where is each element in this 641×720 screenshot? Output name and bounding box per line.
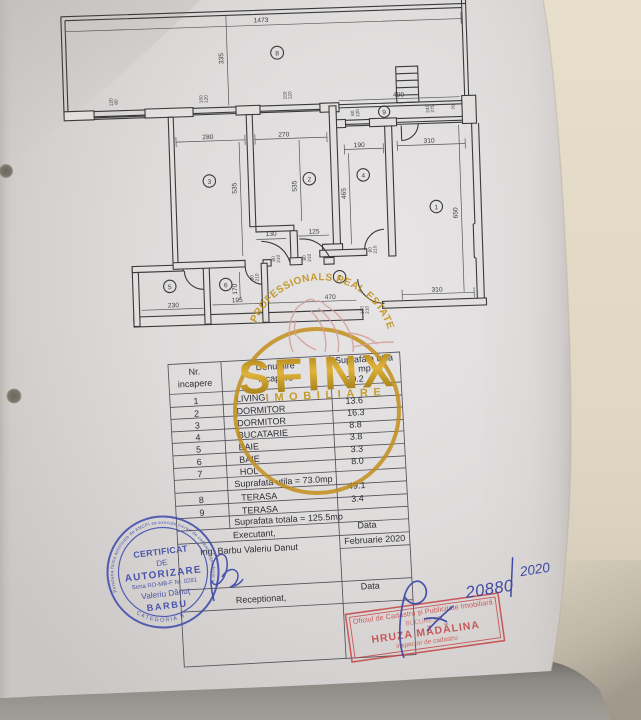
svg-text:230: 230 <box>168 302 180 309</box>
svg-text:2: 2 <box>307 176 311 183</box>
svg-text:Nr.: Nr. <box>188 366 200 377</box>
svg-text:120: 120 <box>203 95 209 104</box>
svg-text:80: 80 <box>114 99 120 105</box>
svg-text:8: 8 <box>275 50 279 57</box>
svg-text:8.0: 8.0 <box>351 456 364 467</box>
svg-text:Data: Data <box>357 520 377 531</box>
svg-text:1: 1 <box>193 396 199 406</box>
svg-text:5: 5 <box>168 284 172 291</box>
svg-text:9: 9 <box>199 508 205 518</box>
svg-text:210: 210 <box>254 273 260 282</box>
svg-text:6: 6 <box>224 282 228 289</box>
svg-text:1: 1 <box>434 204 438 211</box>
svg-text:16.3: 16.3 <box>347 407 365 418</box>
svg-text:310: 310 <box>431 286 443 293</box>
svg-text:120: 120 <box>355 109 361 118</box>
svg-text:1473: 1473 <box>254 17 269 24</box>
svg-text:DE: DE <box>156 558 168 568</box>
svg-text:3.4: 3.4 <box>351 493 364 504</box>
svg-text:275: 275 <box>430 104 436 113</box>
svg-text:TERASA: TERASA <box>241 491 278 503</box>
svg-text:210: 210 <box>276 254 282 263</box>
svg-text:70: 70 <box>451 104 457 110</box>
svg-text:3: 3 <box>207 179 211 186</box>
svg-text:470: 470 <box>325 294 337 301</box>
svg-text:270: 270 <box>278 131 290 138</box>
svg-text:3: 3 <box>195 420 201 430</box>
svg-text:Data: Data <box>360 580 380 591</box>
svg-text:8: 8 <box>199 495 205 505</box>
svg-text:4: 4 <box>361 173 365 180</box>
svg-text:4: 4 <box>195 432 201 442</box>
svg-text:310: 310 <box>424 138 436 145</box>
svg-text:130: 130 <box>266 231 278 238</box>
svg-text:535: 535 <box>231 182 238 194</box>
svg-text:195: 195 <box>232 297 244 304</box>
svg-text:TERASA: TERASA <box>242 504 279 516</box>
svg-text:335: 335 <box>218 53 225 65</box>
svg-text:210: 210 <box>373 245 379 254</box>
svg-text:210: 210 <box>365 305 371 314</box>
svg-text:5: 5 <box>196 444 202 454</box>
svg-text:535: 535 <box>291 180 298 192</box>
svg-text:7: 7 <box>197 469 203 479</box>
svg-text:465: 465 <box>341 188 348 200</box>
svg-text:120: 120 <box>287 91 293 100</box>
svg-text:6: 6 <box>196 457 202 467</box>
svg-text:190: 190 <box>354 142 366 149</box>
svg-text:210: 210 <box>307 253 313 262</box>
svg-text:125: 125 <box>308 228 320 235</box>
svg-text:3.3: 3.3 <box>350 444 363 455</box>
svg-text:2: 2 <box>194 408 200 418</box>
svg-text:650: 650 <box>452 207 459 219</box>
svg-text:170: 170 <box>232 283 239 295</box>
svg-text:9: 9 <box>382 109 386 116</box>
svg-text:incapere: incapere <box>178 378 213 390</box>
svg-text:3.8: 3.8 <box>350 431 363 442</box>
svg-text:280: 280 <box>202 134 214 141</box>
svg-text:8.8: 8.8 <box>349 419 362 430</box>
svg-text:490: 490 <box>393 92 405 99</box>
